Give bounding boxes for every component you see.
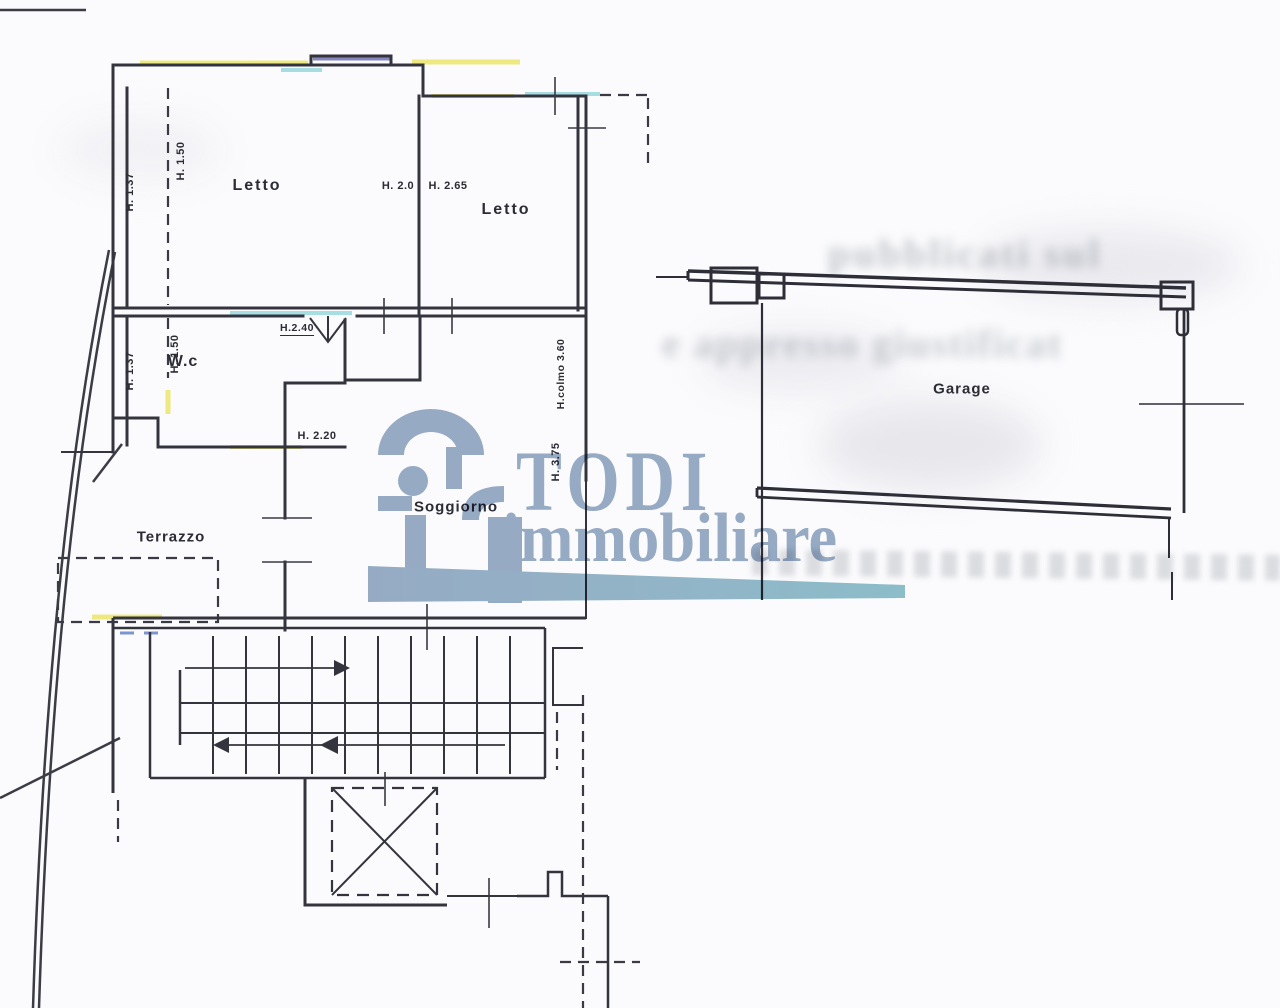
floor-plan-drawing [0, 0, 1280, 1008]
scanned-floorplan-page: pubblicati sul e appresso giustificat [0, 0, 1280, 1008]
measurement-h265-letto2: H. 2.65 [429, 180, 468, 192]
elevator-shaft [305, 778, 608, 1008]
garage-walls [656, 268, 1244, 600]
room-label-letto2: Letto [481, 201, 530, 219]
staircase [113, 618, 586, 793]
room-label-garage: Garage [933, 381, 991, 398]
dashed-lines [58, 88, 648, 1008]
measurement-h375: H. 3.75 [550, 443, 562, 482]
room-label-terrazzo: Terrazzo [137, 529, 206, 546]
measurement-h150-letto1: H. 1.50 [175, 142, 187, 181]
measurement-h220-hall: H. 2.20 [298, 430, 337, 442]
measurement-h20-letto2: H. 2.0 [382, 180, 414, 192]
measurement-h137-letto1: H. 1.37 [124, 173, 136, 212]
room-label-letto1: Letto [232, 177, 281, 195]
door-symbol [310, 316, 346, 342]
room-label-soggiorno: Soggiorno [414, 499, 498, 516]
site-boundary-arc [0, 250, 122, 1008]
measurement-h240-door: H.2.40 [280, 322, 314, 336]
measurement-h137-wc: H. 1.37 [124, 352, 136, 391]
measurement-hcolmo360: H.colmo 3.60 [555, 339, 567, 410]
measurement-h150-wc: H. 1.50 [169, 335, 181, 374]
